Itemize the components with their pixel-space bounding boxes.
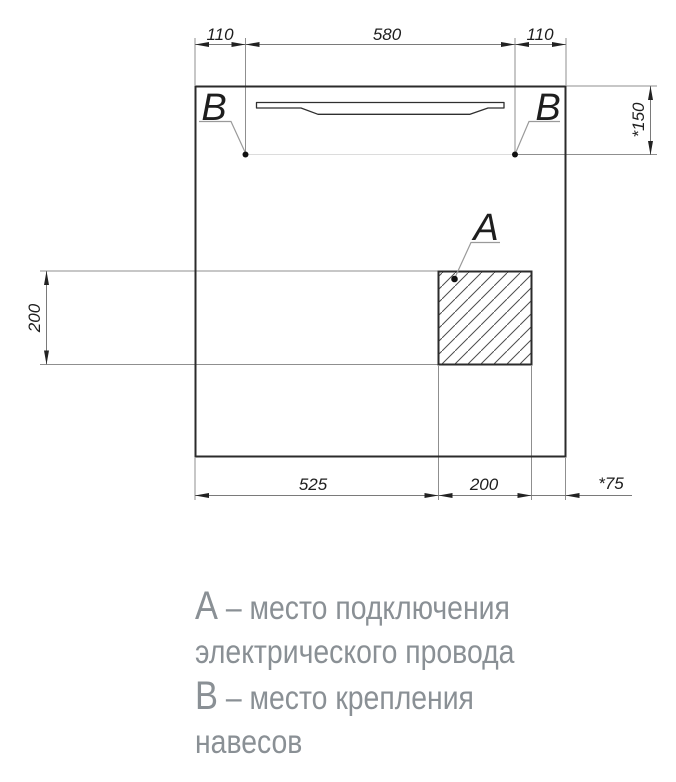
cutout-square (439, 272, 532, 365)
mount-point-dot-right (512, 152, 518, 158)
legend-line-a2: электрического провода (195, 629, 514, 674)
mount-point-dot-left (243, 152, 249, 158)
connection-point-dot (451, 276, 458, 283)
dim-bottom-right: *75 (598, 474, 624, 493)
legend-key-a: А (195, 584, 218, 628)
label-a: А (471, 207, 498, 249)
legend-text-b: – место крепления (218, 679, 474, 716)
dim-top-left: 110 (206, 25, 234, 44)
legend-text-a: – место подключения (218, 589, 510, 626)
legend-line-a: А – место подключения (195, 584, 514, 629)
light-fixture-profile (257, 103, 505, 115)
legend: А – место подключения электрического про… (195, 584, 566, 764)
dim-left-cutout: 200 (25, 303, 44, 333)
technical-drawing: 110 580 110 *150 200 525 200 *75 В В А (0, 0, 676, 540)
label-b-right: В (535, 87, 560, 129)
dim-right-height: *150 (629, 102, 648, 138)
dim-bottom-left: 525 (299, 475, 328, 494)
legend-text-b2: навесов (195, 723, 302, 760)
leader-lines (199, 122, 560, 278)
dim-bottom-center: 200 (469, 475, 499, 494)
dim-top-center: 580 (373, 25, 402, 44)
legend-key-b: В (195, 674, 218, 718)
legend-line-b: В – место крепления (195, 674, 514, 719)
dim-top-right: 110 (526, 25, 554, 44)
label-b-left: В (201, 87, 226, 129)
legend-text-a2: электрического провода (195, 633, 514, 670)
legend-line-b2: навесов (195, 719, 514, 764)
installation-diagram: 110 580 110 *150 200 525 200 *75 В В А А… (0, 0, 676, 782)
